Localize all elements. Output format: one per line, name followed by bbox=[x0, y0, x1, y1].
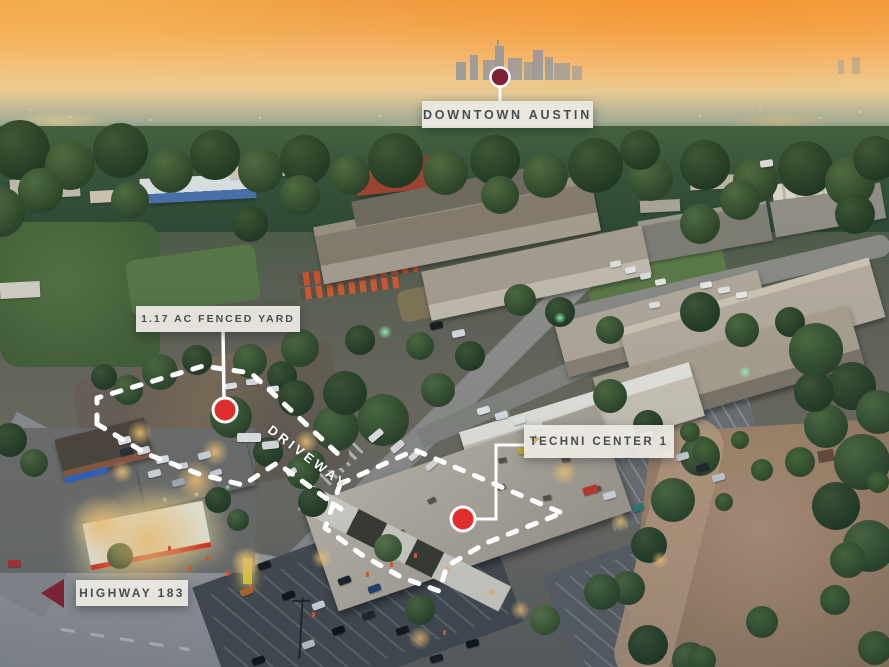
label-highway-183-text: HIGHWAY 183 bbox=[79, 586, 185, 600]
label-downtown-austin-text: DOWNTOWN AUSTIN bbox=[423, 108, 592, 122]
techni-boundary-top bbox=[340, 450, 562, 513]
aerial-photo: DOWNTOWN AUSTIN 1.17 AC FENCED YARD DRIV… bbox=[0, 0, 889, 667]
highway-arrow-left-icon bbox=[41, 579, 64, 608]
downtown-pin-icon bbox=[491, 68, 510, 87]
label-techni-center: ✦ TECHNI CENTER 1 bbox=[524, 425, 674, 458]
techni-pin-icon bbox=[451, 507, 475, 531]
fenced-yard-pin-icon bbox=[213, 398, 237, 422]
label-techni-center-text: TECHNI CENTER 1 bbox=[530, 436, 669, 448]
label-highway-183: HIGHWAY 183 bbox=[76, 580, 188, 606]
label-downtown-austin: DOWNTOWN AUSTIN bbox=[422, 101, 593, 128]
fenced-yard-pin-stem bbox=[223, 332, 224, 397]
techni-boundary-bottom bbox=[325, 484, 562, 591]
techni-connector-line bbox=[476, 445, 527, 519]
label-fenced-yard: 1.17 AC FENCED YARD bbox=[136, 306, 300, 332]
fenced-yard-boundary-bottom bbox=[97, 424, 341, 509]
label-fenced-yard-text: 1.17 AC FENCED YARD bbox=[141, 313, 295, 325]
